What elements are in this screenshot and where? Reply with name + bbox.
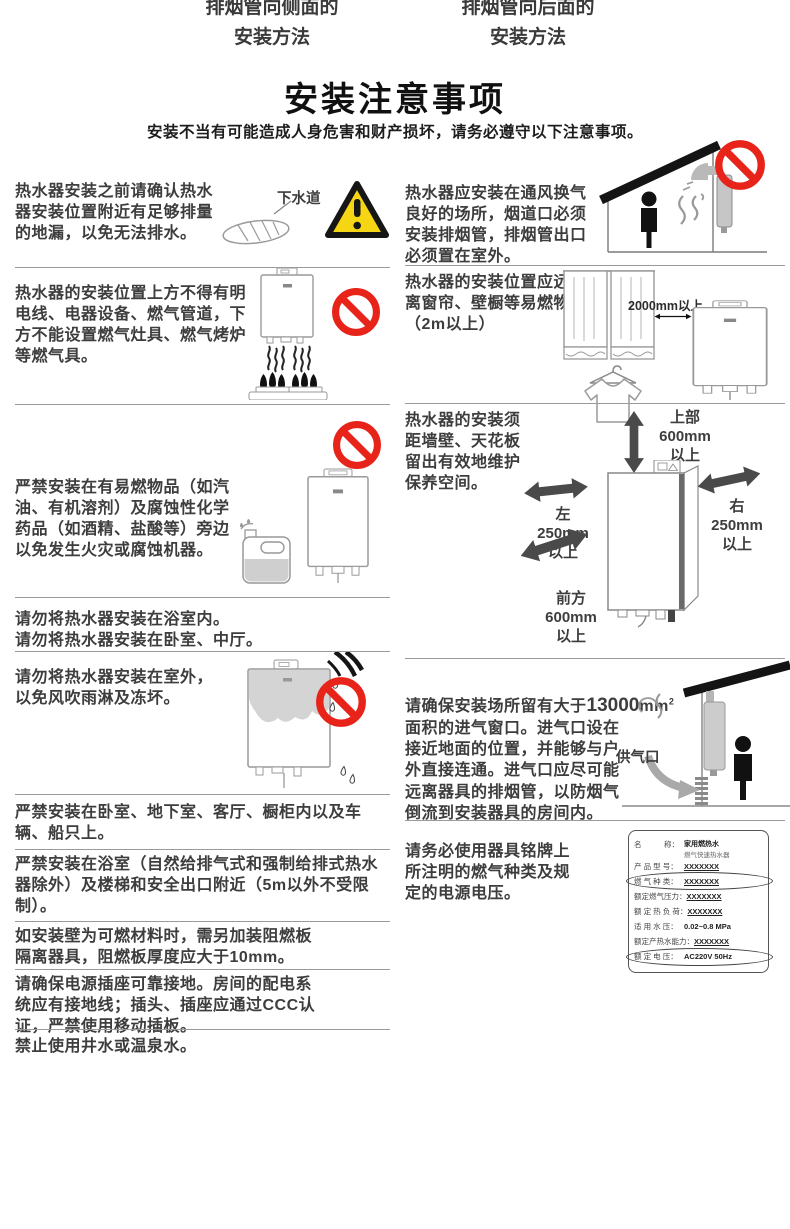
drain-illustration	[218, 198, 298, 250]
right-item5-text: 请务必使用器具铭牌上 所注明的燃气种类及规 定的电源电压。	[405, 841, 570, 904]
header-side-install-line1: 排烟管向侧面的	[172, 0, 372, 23]
prohibition-icon	[714, 139, 766, 191]
water-heater-illustration	[686, 300, 774, 400]
clearance-arrow-left-icon	[523, 475, 589, 506]
divider	[15, 1029, 390, 1030]
water-heater-illustration	[302, 468, 374, 583]
divider	[405, 820, 785, 821]
water-heater-above-stove-illustration	[245, 268, 330, 400]
nameplate-row: 名 称： 家用燃热水燃气快速热水器	[634, 837, 763, 859]
installation-notice-page: 排烟管向侧面的 安装方法 排烟管向后面的 安装方法 安装注意事项 安装不当有可能…	[0, 0, 790, 1229]
right-item3-text: 热水器的安装须 距墙壁、天花板 留出有效地维护 保养空间。	[405, 410, 521, 494]
left-item2-text: 热水器的安装位置上方不得有明 电线、电器设备、燃气管道，下 方不能设置燃气灶具、…	[15, 283, 246, 367]
left-item1-text: 热水器安装之前请确认热水 器安装位置附近有足够排量 的地漏，以免无法排水。	[15, 181, 213, 244]
left-item5-text: 请勿将热水器安装在室外， 以免风吹雨淋及冻坏。	[15, 667, 213, 709]
left-item7-text: 严禁安装在浴室（自然给排气式和强制给排式热水 器除外）及楼梯和安全出口附近（5m…	[15, 854, 378, 917]
left-item4-text: 请勿将热水器安装在浴室内。 请勿将热水器安装在卧室、中厅。	[15, 609, 263, 651]
clearance-arrow-right-icon	[695, 462, 763, 499]
air-inlet-illustration	[598, 660, 790, 810]
header-rear-install: 排烟管向后面的 安装方法	[428, 0, 628, 53]
nameplate: 名 称： 家用燃热水燃气快速热水器 产 品 型 号： XXXXXXX 燃 气 种…	[628, 830, 769, 973]
divider	[15, 597, 390, 598]
clearance-top-label: 上部 600mm 以上	[652, 409, 718, 465]
left-item6-text: 严禁安装在卧室、地下室、客厅、橱柜内以及车 辆、船只上。	[15, 802, 362, 844]
divider	[15, 921, 390, 922]
left-item9-text: 请确保电源插座可靠接地。房间的配电系 统应有接地线；插头、插座应通过CCC认 证…	[15, 974, 315, 1037]
gas-supply-label: 供气口	[616, 746, 660, 767]
right-item2-text: 热水器的安装位置应远 离窗帘、壁橱等易燃物。 （2m以上）	[405, 272, 587, 335]
divider	[15, 849, 390, 850]
divider	[15, 969, 390, 970]
header-side-install: 排烟管向侧面的 安装方法	[172, 0, 372, 53]
gas-type-highlight-ellipse	[626, 872, 773, 890]
divider	[405, 403, 785, 404]
left-item8-text: 如安装壁为可燃材料时，需另加装阻燃板 隔离器具，阻燃板厚度应大于10mm。	[15, 926, 312, 968]
prohibition-icon	[331, 287, 381, 337]
nameplate-row: 额定产热水能力： XXXXXXX	[634, 934, 763, 949]
nameplate-row: 适 用 水 压： 0.02~0.8 MPa	[634, 919, 763, 934]
right-item4-text-before: 请确保安装场所留有大于	[405, 698, 587, 715]
prohibition-icon	[332, 420, 382, 470]
divider	[15, 404, 390, 405]
fuel-can-illustration	[237, 519, 295, 585]
clearance-right-label: 右 250mm 以上	[706, 498, 768, 554]
voltage-highlight-ellipse	[626, 948, 773, 966]
right-item4-text-after: 面积的进气窗口。进气口设在 接近地面的位置，并能够与户 外直接连通。进气口应尽可…	[405, 720, 620, 821]
right-item1-text: 热水器应安装在通风换气 良好的场所，烟道口必须 安装排烟管，排烟管出口 必须置在…	[405, 183, 587, 267]
nameplate-row: 额 定 热 负 荷： XXXXXXX	[634, 904, 763, 919]
header-rear-install-line1: 排烟管向后面的	[428, 0, 628, 23]
left-item10-text: 禁止使用井水或温泉水。	[15, 1036, 197, 1057]
page-title: 安装注意事项	[0, 72, 790, 121]
header-side-install-line2: 安装方法	[172, 23, 372, 53]
water-heater-3d-illustration	[606, 460, 702, 630]
prohibition-icon	[315, 676, 367, 728]
header-rear-install-line2: 安装方法	[428, 23, 628, 53]
divider	[405, 658, 785, 659]
divider	[405, 265, 785, 266]
curtain-illustration	[562, 269, 656, 361]
warning-triangle-icon	[324, 180, 390, 240]
nameplate-row: 额定燃气压力： XXXXXXX	[634, 889, 763, 904]
clearance-front-label: 前方 600mm 以上	[536, 590, 606, 646]
left-item3-text: 严禁安装在有易燃物品（如汽 油、有机溶剂）及腐蚀性化学 药品（如酒精、盐酸等）旁…	[15, 477, 230, 561]
divider	[15, 267, 390, 268]
divider	[15, 794, 390, 795]
